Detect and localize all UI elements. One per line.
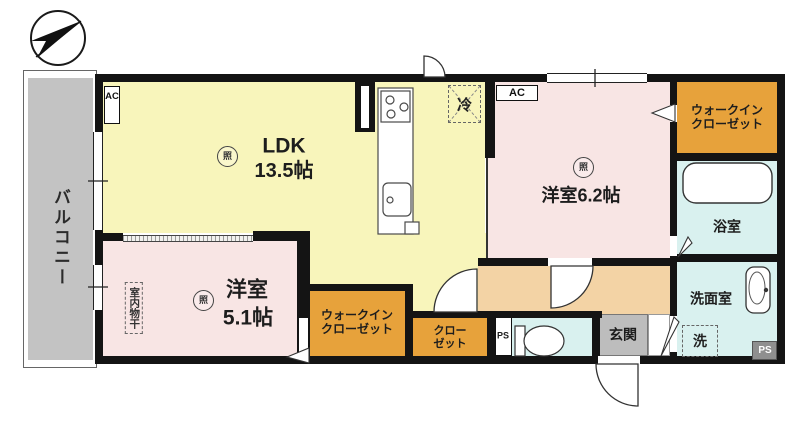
wic-line1: ウォークイン [691,103,763,117]
closet-line2: ゼット [434,338,467,350]
light-mark: 照 [573,157,594,178]
light-mark: 照 [193,290,214,311]
ldk-size: 13.5帖 [255,160,314,184]
room-ldk [310,233,488,266]
north-compass-icon [31,11,85,65]
wall-segment [95,233,123,241]
wall-segment [95,356,785,364]
floorplan: バルコニー [0,0,800,422]
bedroom-51-size: 5.1帖 [223,307,273,332]
ac-label-box: AC [496,85,538,101]
washer-space: 洗 [682,325,718,357]
walk-in-closet-label: ウォークイン クローゼット [691,103,763,131]
entrance-label: 玄関 [609,327,637,344]
wall-segment [670,254,785,262]
wall-segment [405,284,413,364]
entrance-step [648,314,670,356]
wall-segment [405,311,602,318]
wall-segment [297,284,413,291]
closet-line1: クロー [434,325,467,337]
indoor-drying-label: 室内物干 [125,282,143,334]
bedroom-51-name: 洋室 [226,279,268,304]
sliding-partition [123,235,253,242]
pipe-space-label: PS [497,329,509,343]
wall-segment [95,74,785,82]
wic-line2: クローゼット [691,117,763,131]
walk-in-closet-label: ウォークイン クローゼット [321,308,393,336]
bathroom-area [677,161,777,254]
ldk-name: LDK [262,135,305,160]
window [93,132,103,230]
door-opening [670,105,677,122]
light-mark: 照 [217,146,238,167]
room-ldk [413,266,478,311]
closet-label: クロー ゼット [434,325,467,351]
wall-segment [777,74,785,364]
pocket-slit [361,86,369,128]
wall-segment [670,153,785,161]
bedroom-62-label: 洋室6.2帖 [541,185,620,206]
window [93,265,103,310]
door-opening [299,318,308,352]
door-opening [670,316,677,352]
wall-segment [485,74,495,158]
door-opening [598,356,640,364]
window [547,73,647,83]
door-opening [548,258,592,266]
pipe-space-label: PS [758,345,771,357]
wall-segment [487,311,495,364]
hallway [478,266,672,311]
door-opening [670,236,677,256]
ac-label-box: AC [104,86,120,124]
bathroom-label: 浴室 [713,219,741,236]
balcony-label: バルコニー [50,188,70,288]
wic-line1: ウォークイン [321,308,393,322]
refrigerator-space: 冷 [448,85,481,123]
washroom-label: 洗面室 [690,291,732,308]
wall-segment [486,158,488,266]
wic-line2: クローゼット [321,322,393,336]
toilet-room [512,318,592,356]
